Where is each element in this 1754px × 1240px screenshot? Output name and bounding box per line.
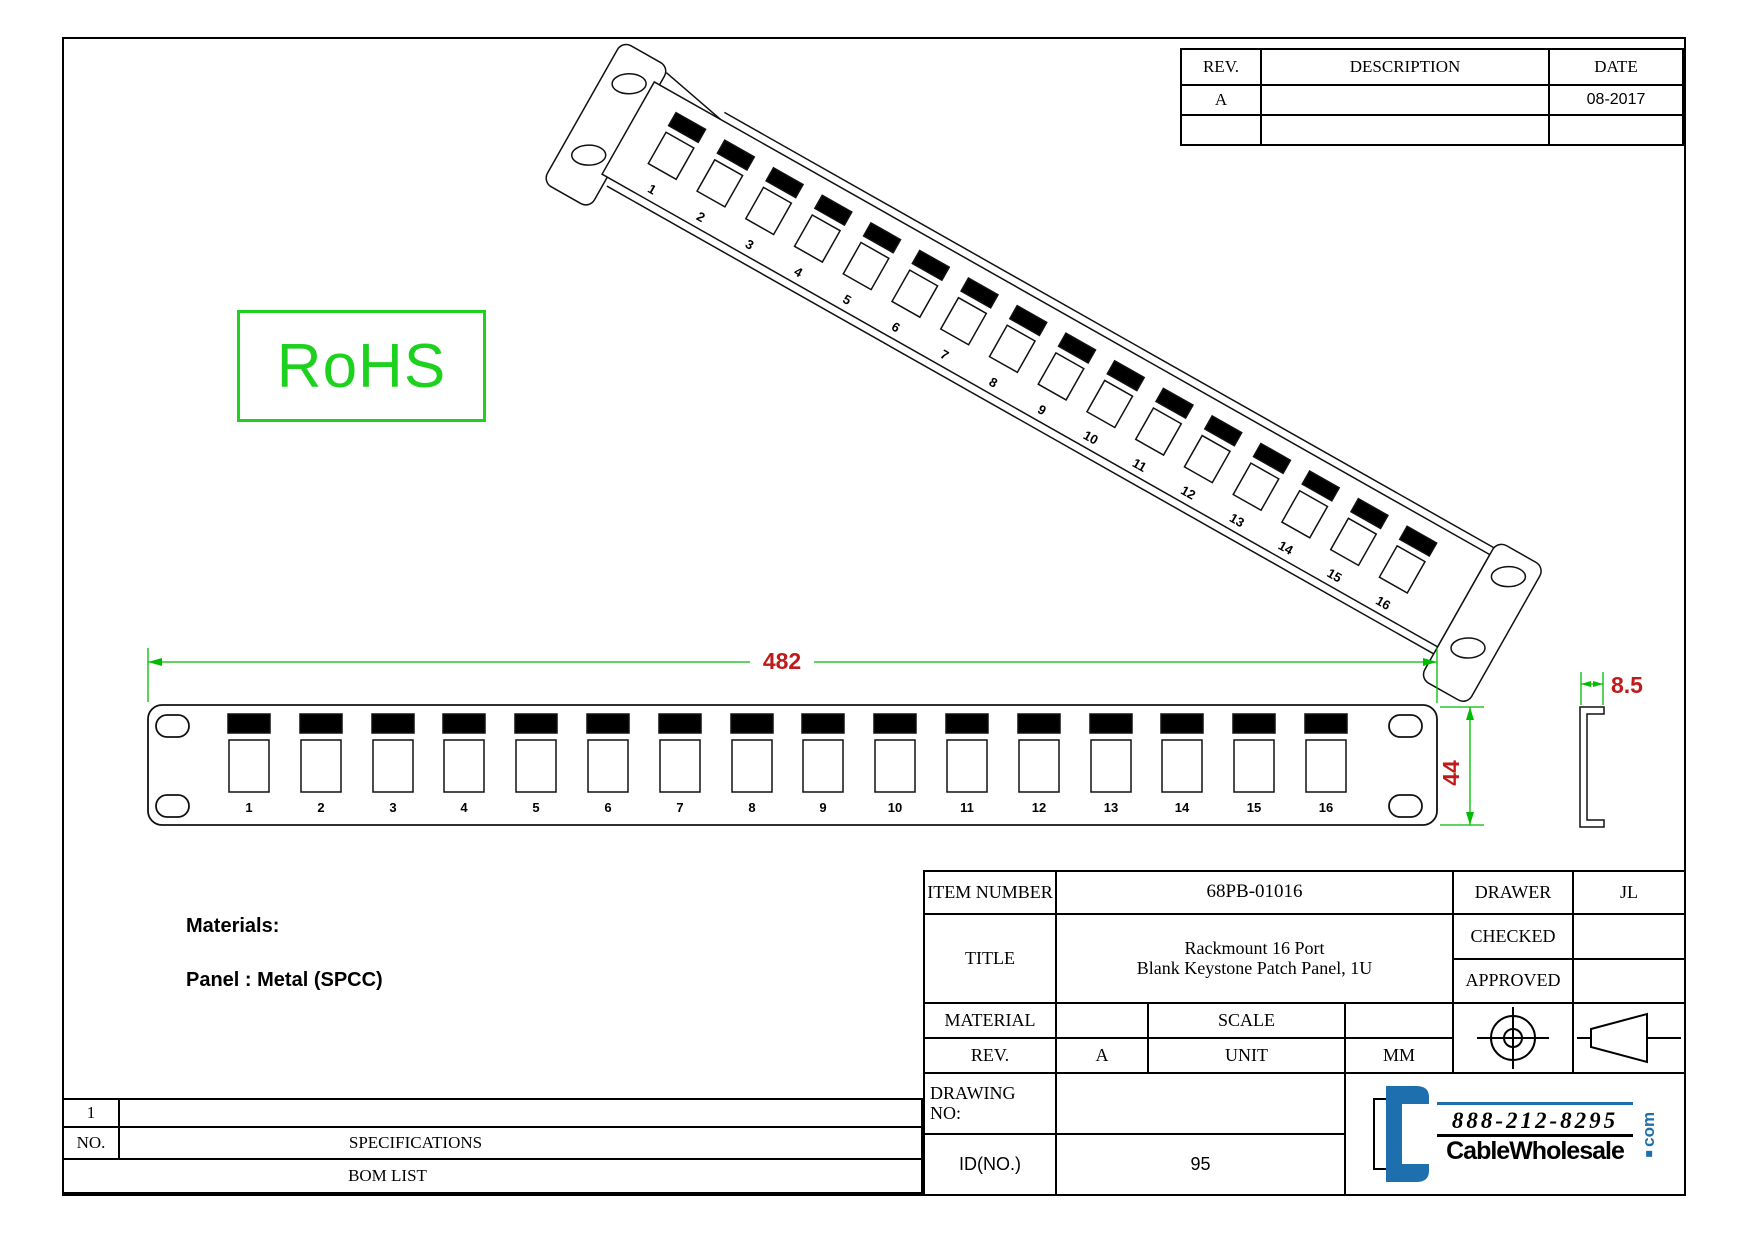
drawing-no-label: DRAWING NO: (925, 1074, 1055, 1133)
bom-row-no: 1 (64, 1100, 118, 1126)
checked-value (1574, 915, 1684, 958)
logo-phone: 888-212-8295 (1437, 1108, 1633, 1137)
logo-name: CableWholesale (1437, 1138, 1633, 1166)
rev-row-description (1262, 86, 1548, 114)
iso-bottom-depth-line (607, 186, 1439, 657)
svg-text:6: 6 (604, 800, 611, 815)
title-line2: Blank Keystone Patch Panel, 1U (1137, 959, 1372, 979)
logo-text-block: 888-212-8295 CableWholesale (1437, 1102, 1633, 1166)
svg-text:11: 11 (960, 800, 974, 815)
rev-row2-rev (1182, 116, 1260, 144)
material-label: MATERIAL (925, 1004, 1055, 1037)
engineering-drawing-page: { "colors": { "line": "#111111", "dimens… (0, 0, 1754, 1240)
svg-text:13: 13 (1104, 800, 1118, 815)
materials-panel-note: Panel : Metal (SPCC) (186, 969, 383, 992)
rev-header-rev: REV. (1182, 50, 1260, 84)
svg-text:3: 3 (389, 800, 396, 815)
svg-text:1: 1 (245, 800, 252, 815)
front-hole-right-top (1389, 715, 1422, 737)
materials-heading: Materials: (186, 915, 279, 938)
title-label: TITLE (925, 915, 1055, 1002)
svg-text:5: 5 (532, 800, 539, 815)
rohs-label: RoHS (277, 331, 446, 402)
svg-text:15: 15 (1247, 800, 1261, 815)
front-view: 1 2 3 4 5 6 7 8 9 10 11 12 13 14 15 16 (148, 705, 1437, 825)
drawer-label: DRAWER (1454, 872, 1572, 913)
front-hole-left-bottom (156, 795, 189, 817)
front-hole-right-bottom (1389, 795, 1422, 817)
checked-label: CHECKED (1454, 915, 1572, 958)
title-block: ITEM NUMBER 68PB-01016 DRAWER JL TITLE R… (923, 870, 1686, 1196)
bom-row-spec (120, 1100, 921, 1126)
dim-44-arrow-bottom (1466, 812, 1474, 825)
svg-text:14: 14 (1175, 800, 1190, 815)
rev-row-rev: A (1182, 86, 1260, 114)
logo-cell: 888-212-8295 CableWholesale com (1346, 1074, 1684, 1194)
iso-right-ear-hole-top (1491, 567, 1525, 587)
unit-value: MM (1346, 1039, 1452, 1072)
svg-text:8: 8 (748, 800, 755, 815)
side-view (1580, 707, 1604, 827)
iso-left-ear-hole-top (612, 74, 646, 94)
svg-text:7: 7 (676, 800, 683, 815)
material-value (1057, 1004, 1147, 1037)
id-value: 95 (1057, 1135, 1344, 1194)
svg-text:10: 10 (888, 800, 902, 815)
title-line1: Rackmount 16 Port (1185, 939, 1325, 959)
dim-44-arrow-top (1466, 707, 1474, 720)
dim-85-label: 8.5 (1611, 672, 1643, 698)
approved-label: APPROVED (1454, 960, 1572, 1002)
scale-value (1346, 1004, 1452, 1037)
svg-text:9: 9 (819, 800, 826, 815)
drawer-value: JL (1574, 872, 1684, 913)
logo-tld: com (1640, 1112, 1659, 1147)
unit-label: UNIT (1149, 1039, 1344, 1072)
bom-footer: BOM LIST (64, 1160, 921, 1192)
rev-value: A (1057, 1039, 1147, 1072)
front-hole-left-top (156, 715, 189, 737)
cablewholesale-c-icon (1371, 1084, 1431, 1184)
bom-table: 1 NO. SPECIFICATIONS BOM LIST (62, 1098, 923, 1194)
iso-right-ear-hole-bottom (1451, 638, 1485, 658)
projection-symbol-target (1454, 1004, 1572, 1072)
dim-85-arrow-left (1581, 681, 1591, 687)
cone-projection-symbol (1575, 1005, 1683, 1071)
rohs-badge: RoHS (237, 310, 486, 422)
rev-header-description: DESCRIPTION (1262, 50, 1548, 84)
iso-left-ear-hole-bottom (572, 145, 606, 165)
svg-text:2: 2 (317, 800, 324, 815)
drawing-no-value (1057, 1074, 1344, 1133)
logo-tld-wrap: com (1639, 1086, 1659, 1182)
iso-top-depth-line (724, 112, 1499, 550)
dim-482-arrow-left (148, 658, 162, 666)
rev-row2-description (1262, 116, 1548, 144)
dim-482-label: 482 (763, 648, 801, 674)
logo-dot (1646, 1150, 1652, 1156)
svg-text:12: 12 (1032, 800, 1046, 815)
title-value: Rackmount 16 Port Blank Keystone Patch P… (1057, 915, 1452, 1002)
revision-table: REV. DESCRIPTION DATE A 08-2017 (1180, 48, 1684, 146)
rev-label: REV. (925, 1039, 1055, 1072)
bom-header-no: NO. (64, 1128, 118, 1158)
first-angle-symbol (1455, 1005, 1571, 1071)
logo-top-rule (1437, 1102, 1633, 1105)
dim-44-label: 44 (1438, 760, 1464, 786)
rev-header-date: DATE (1550, 50, 1682, 84)
item-number-label: ITEM NUMBER (925, 872, 1055, 913)
bom-header-spec: SPECIFICATIONS (120, 1128, 921, 1158)
approved-value (1574, 960, 1684, 1002)
id-label: ID(NO.) (925, 1135, 1055, 1194)
scale-label: SCALE (1149, 1004, 1344, 1037)
svg-text:4: 4 (460, 800, 468, 815)
item-number-value: 68PB-01016 (1057, 872, 1452, 913)
projection-symbol-cone (1574, 1004, 1684, 1072)
dim-85-arrow-right (1593, 681, 1603, 687)
side-profile (1580, 707, 1604, 827)
svg-text:16: 16 (1319, 800, 1333, 815)
rev-row-date: 08-2017 (1550, 86, 1682, 114)
rev-row2-date (1550, 116, 1682, 144)
